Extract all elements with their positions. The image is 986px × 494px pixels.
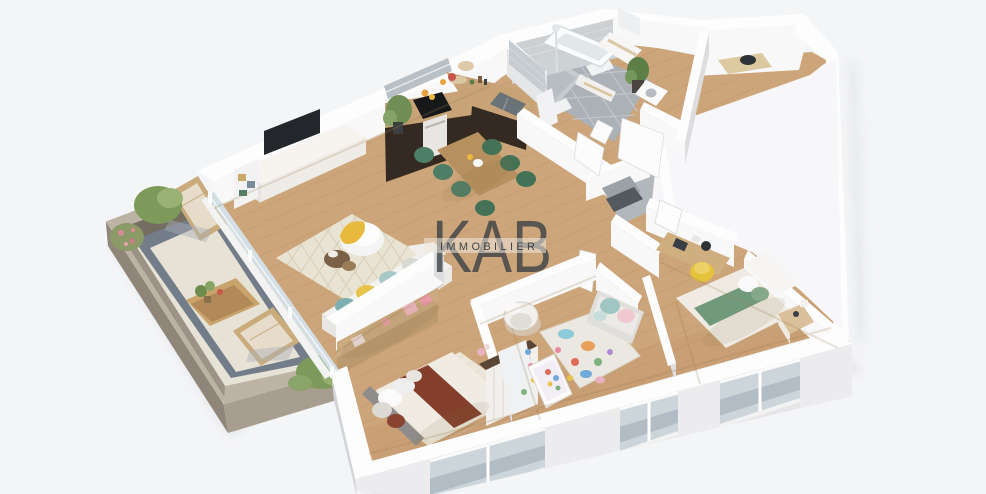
svg-text:IMMOBILIER: IMMOBILIER	[440, 241, 535, 253]
